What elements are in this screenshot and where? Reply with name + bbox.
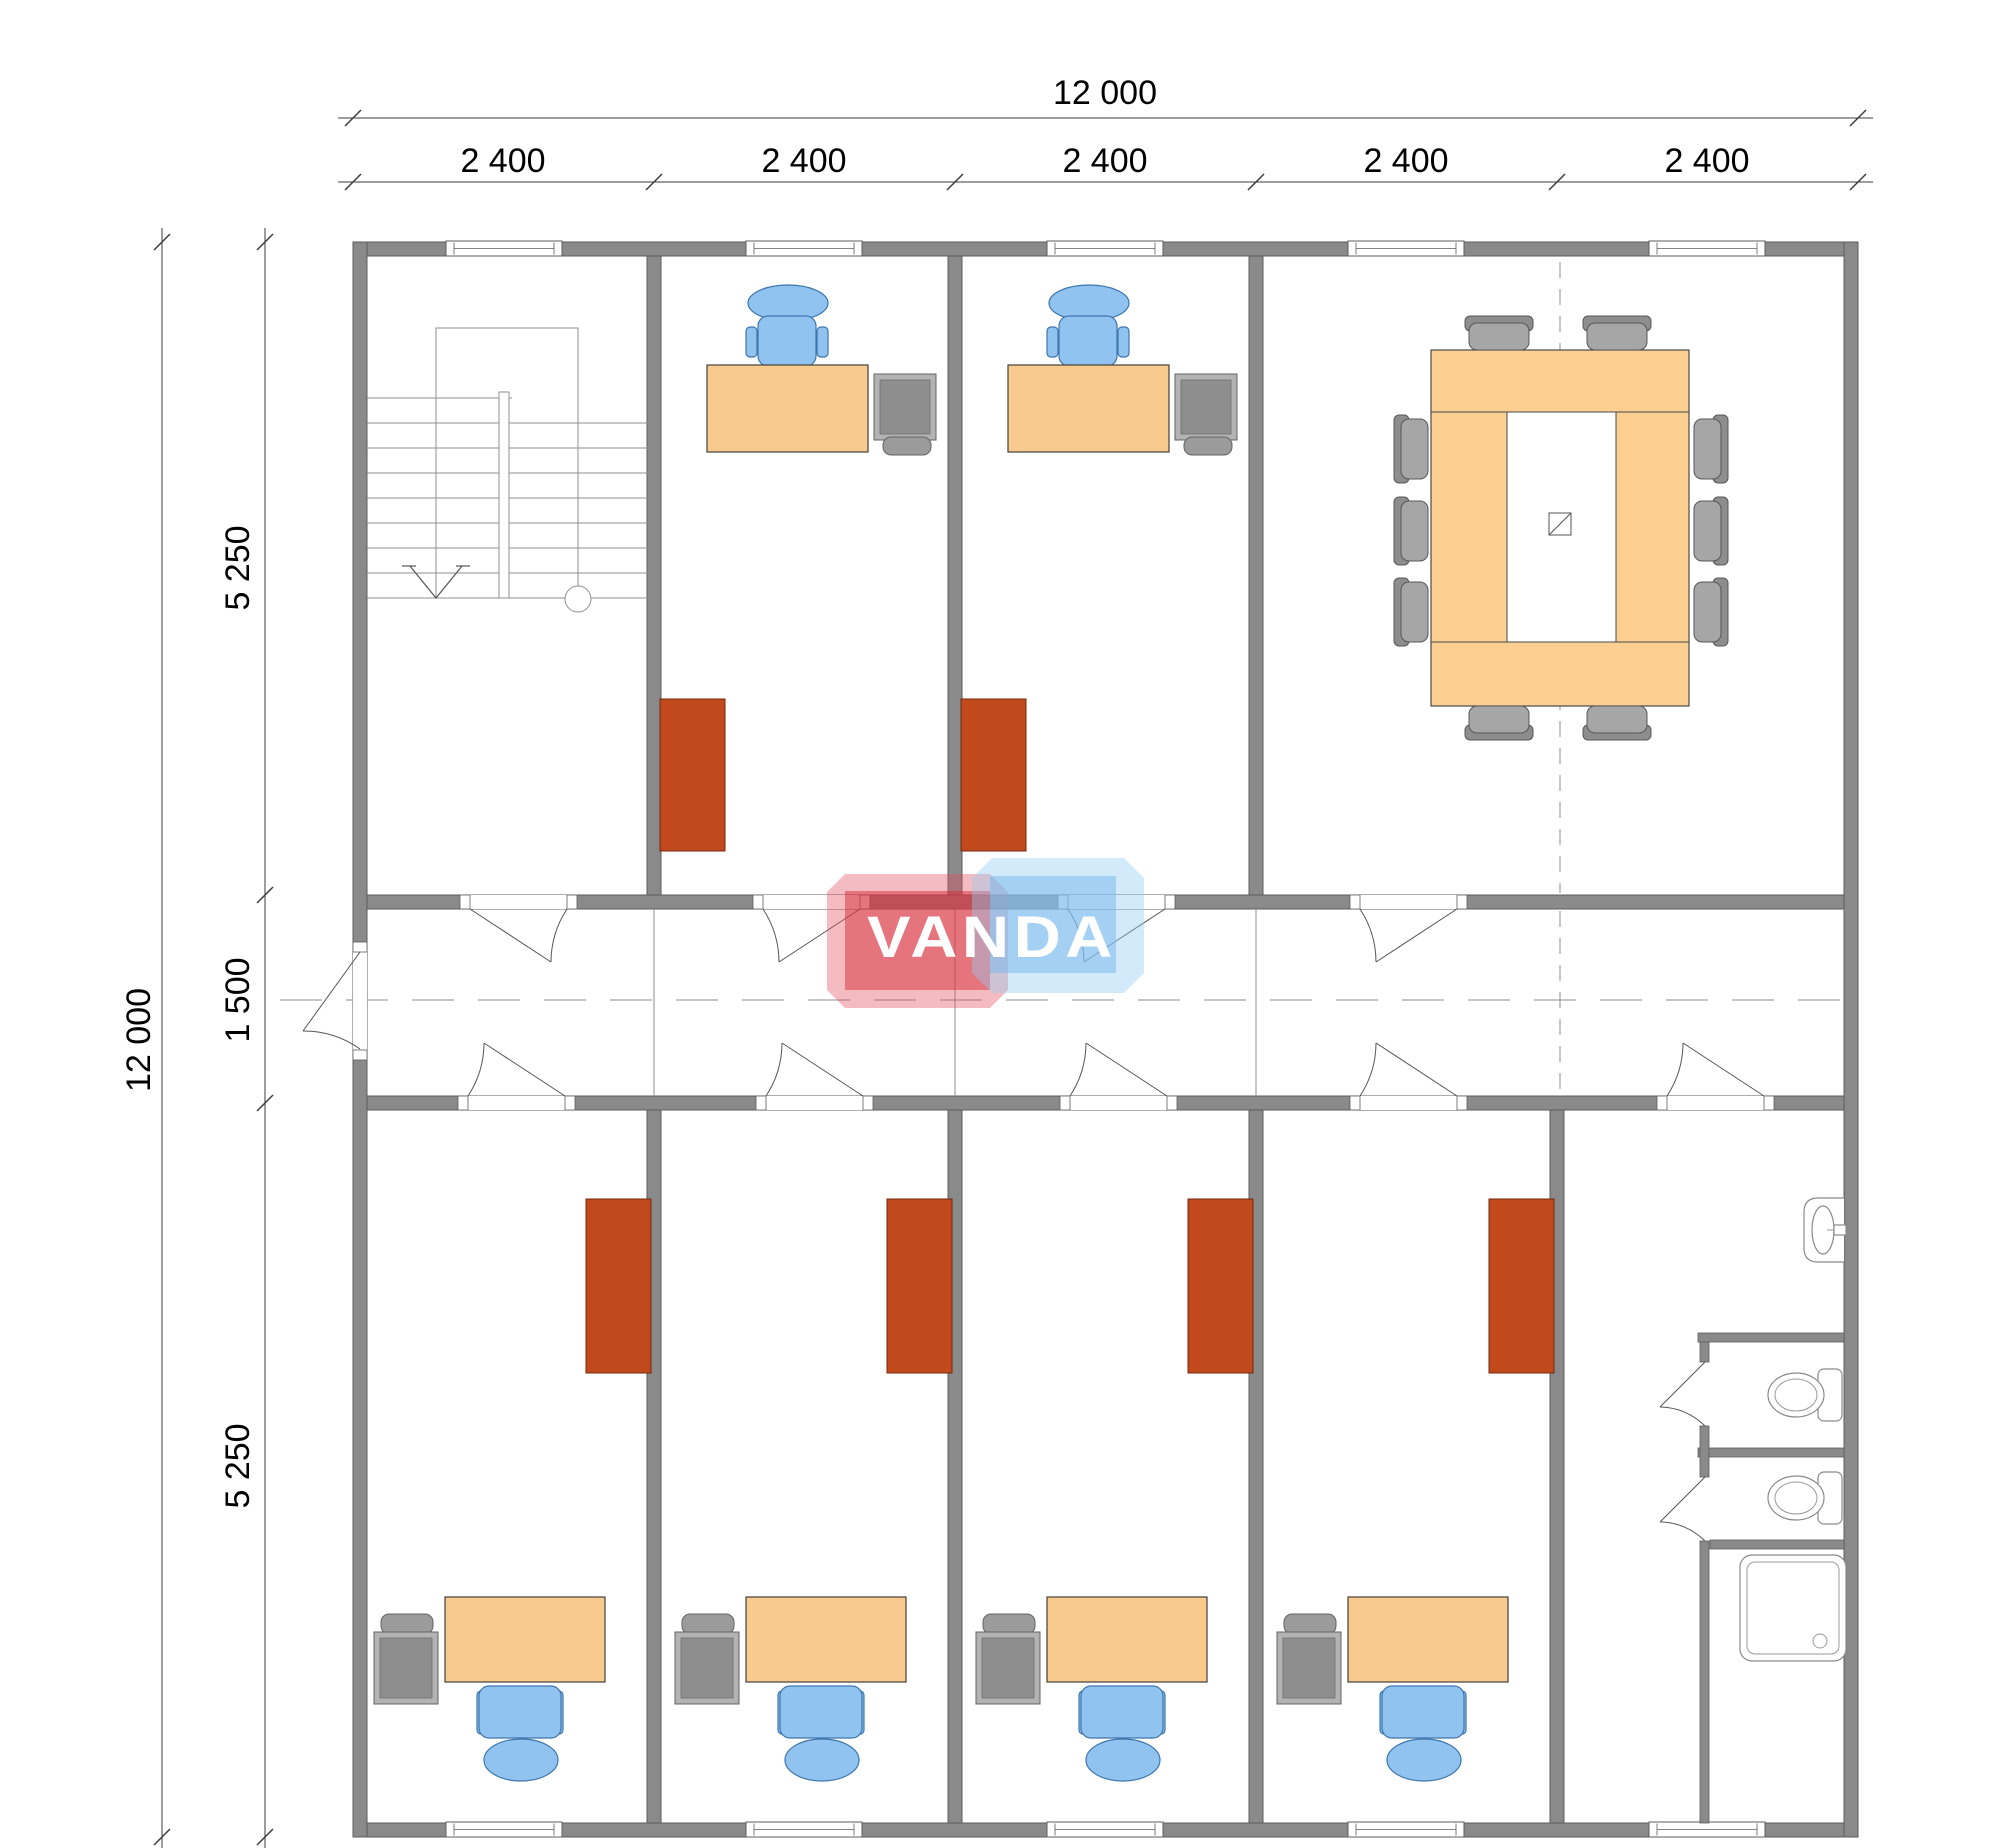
desk-group-office-top-2 <box>961 285 1237 851</box>
conference-chair <box>1694 415 1728 483</box>
conference-chair <box>1394 415 1428 483</box>
dimension-left-total: 12 000 <box>120 228 170 1848</box>
shower <box>1740 1555 1846 1661</box>
dim-label-left-bottom: 5 250 <box>219 1423 257 1508</box>
door-conference <box>1350 895 1467 962</box>
window-bottom-1 <box>446 1822 562 1837</box>
dim-label-left-top: 5 250 <box>219 525 257 610</box>
dim-label-bay-2: 2 400 <box>761 142 846 180</box>
desk-group-office-bottom-3 <box>976 1199 1253 1781</box>
desk-group-office-bottom-1 <box>374 1199 651 1781</box>
conference-table-opening <box>1507 412 1616 642</box>
conference-chair <box>1465 706 1533 740</box>
desk-group-office-top-1 <box>660 285 936 851</box>
door-office-bottom-1 <box>458 1043 575 1110</box>
window-bottom-4 <box>1348 1822 1464 1837</box>
door-office-bottom-2 <box>756 1043 873 1110</box>
window-bottom-2 <box>746 1822 862 1837</box>
conference-chair <box>1394 578 1428 646</box>
conference-chair <box>1694 578 1728 646</box>
toilet-1 <box>1768 1369 1842 1421</box>
dimension-top-segments: 2 400 2 400 2 400 2 400 2 400 <box>338 142 1873 190</box>
dim-label-top-total: 12 000 <box>1053 74 1157 112</box>
wall-partition-top-1 <box>647 256 661 895</box>
conference-chair <box>1694 497 1728 565</box>
stall-door-1 <box>1660 1362 1705 1426</box>
stair-pole <box>565 586 591 612</box>
wall-partition-top-2 <box>948 256 962 895</box>
door-bathroom <box>1657 1043 1774 1110</box>
dim-label-left-mid: 1 500 <box>219 957 257 1042</box>
dimension-left-segments: 5 250 1 500 5 250 <box>219 228 273 1848</box>
desk-group-office-bottom-2 <box>675 1199 952 1781</box>
door-entrance <box>303 942 367 1060</box>
window-bottom-5 <box>1649 1822 1765 1837</box>
dim-label-bay-4: 2 400 <box>1363 142 1448 180</box>
conference-chair <box>1583 706 1651 740</box>
wall-partition-top-3 <box>1249 256 1263 895</box>
desk-group-office-bottom-4 <box>1277 1199 1554 1781</box>
window-top-5 <box>1649 241 1765 256</box>
window-top-3 <box>1047 241 1163 256</box>
vanda-watermark: VANDA <box>827 858 1144 1008</box>
office-furniture <box>374 285 1554 1781</box>
window-top-1 <box>446 241 562 256</box>
dim-label-bay-3: 2 400 <box>1062 142 1147 180</box>
toilet-2 <box>1768 1472 1842 1524</box>
conference-room <box>1394 316 1728 740</box>
window-top-4 <box>1348 241 1464 256</box>
floor-plan-canvas: 12 000 2 400 2 400 2 400 2 400 2 400 12 … <box>0 0 2000 1848</box>
stair-divider <box>499 392 509 598</box>
dim-label-bay-1: 2 400 <box>460 142 545 180</box>
door-office-bottom-3 <box>1060 1043 1177 1110</box>
dim-label-left-total: 12 000 <box>120 988 158 1092</box>
bathroom <box>1660 1198 1846 1823</box>
conference-chair <box>1583 316 1651 350</box>
window-bottom-3 <box>1047 1822 1163 1837</box>
stairwell <box>367 328 648 612</box>
conference-chair <box>1465 316 1533 350</box>
sink <box>1804 1198 1846 1262</box>
stall-door-2 <box>1660 1477 1705 1541</box>
conference-chair <box>1394 497 1428 565</box>
window-top-2 <box>746 241 862 256</box>
dimension-top-total: 12 000 <box>338 74 1873 126</box>
dim-label-bay-5: 2 400 <box>1664 142 1749 180</box>
door-office-bottom-4 <box>1350 1043 1467 1110</box>
door-stairwell <box>460 895 577 962</box>
watermark-text: VANDA <box>867 905 1117 970</box>
